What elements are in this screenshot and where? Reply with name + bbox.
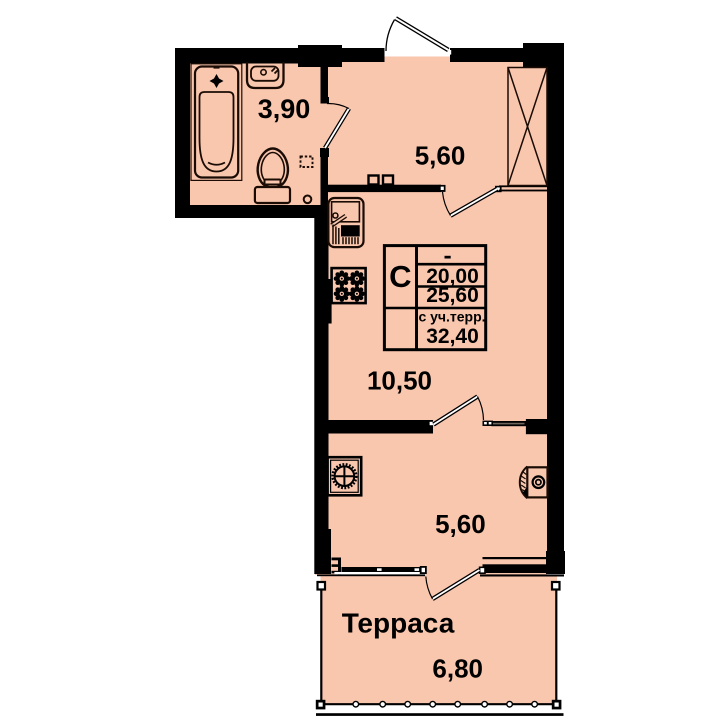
svg-text:5,60: 5,60: [415, 140, 466, 170]
svg-text:25,60: 25,60: [426, 284, 479, 307]
svg-text:с уч.терр.: с уч.терр.: [418, 309, 485, 325]
svg-text:32,40: 32,40: [426, 325, 479, 348]
svg-text:6,80: 6,80: [432, 653, 483, 683]
svg-text:С: С: [389, 259, 411, 294]
svg-text:3,90: 3,90: [258, 94, 311, 124]
svg-text:Терраса: Терраса: [342, 608, 455, 639]
svg-text:5,60: 5,60: [435, 509, 486, 539]
svg-text:10,50: 10,50: [367, 366, 432, 396]
